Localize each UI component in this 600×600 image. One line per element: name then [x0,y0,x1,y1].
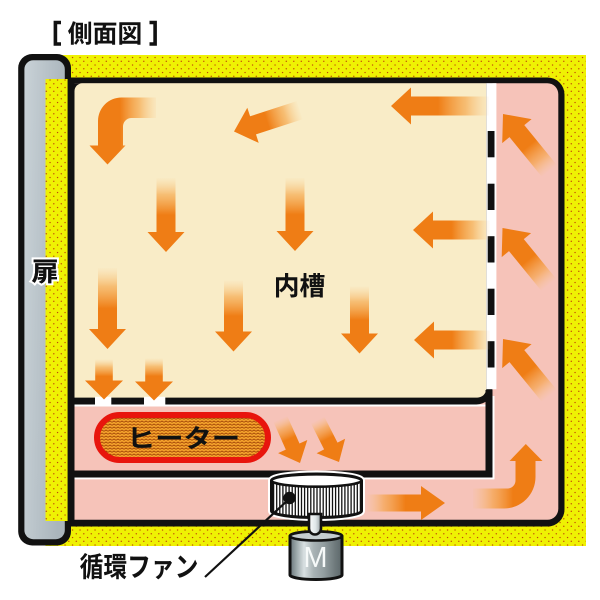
svg-text:M: M [303,542,327,574]
